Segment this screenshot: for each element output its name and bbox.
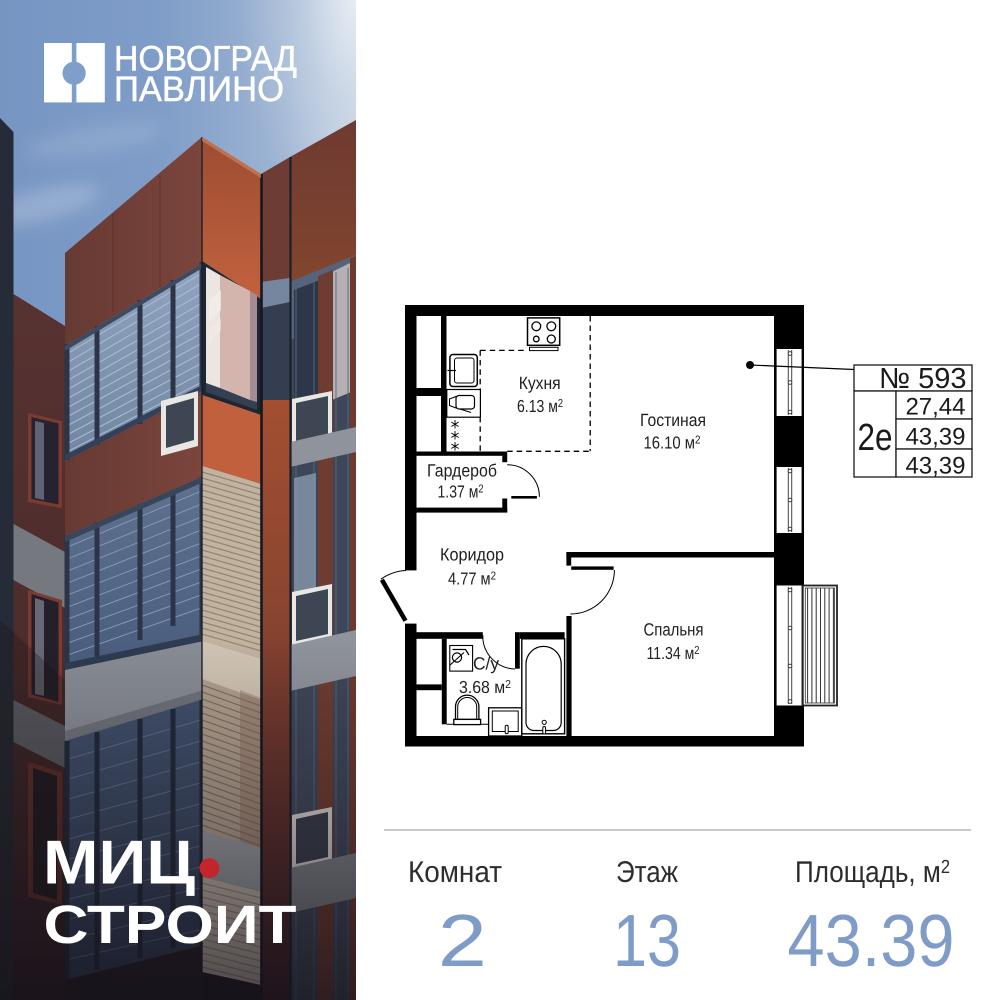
svg-text:Комнат: Комнат — [408, 856, 502, 889]
svg-text:ПАВЛИНО: ПАВЛИНО — [114, 69, 284, 109]
svg-text:43,39: 43,39 — [905, 453, 965, 480]
svg-text:11.34 м2: 11.34 м2 — [647, 643, 700, 663]
svg-text:43,39: 43,39 — [905, 424, 965, 451]
svg-text:Гардероб: Гардероб — [427, 461, 497, 481]
svg-text:16.10 м2: 16.10 м2 — [644, 433, 701, 453]
svg-text:Спальня: Спальня — [644, 620, 704, 640]
svg-text:27,44: 27,44 — [905, 394, 965, 421]
svg-text:МИЦ: МИЦ — [43, 829, 195, 898]
svg-text:43.39: 43.39 — [788, 899, 955, 982]
svg-text:13: 13 — [613, 899, 681, 982]
svg-text:С/у: С/у — [473, 654, 499, 674]
svg-text:№ 593: № 593 — [879, 363, 967, 395]
svg-text:3.68 м2: 3.68 м2 — [459, 677, 511, 697]
svg-text:1.37 м2: 1.37 м2 — [438, 482, 484, 502]
svg-text:4.77 м2: 4.77 м2 — [448, 569, 496, 589]
svg-text:Этаж: Этаж — [616, 856, 678, 889]
svg-text:Гостиная: Гостиная — [640, 410, 706, 430]
svg-text:2е: 2е — [858, 417, 893, 459]
svg-text:6.13 м2: 6.13 м2 — [517, 396, 563, 416]
svg-text:СТРОИТ: СТРОИТ — [44, 895, 297, 955]
svg-text:Коридор: Коридор — [440, 545, 504, 565]
svg-text:Кухня: Кухня — [519, 373, 561, 393]
svg-text:2: 2 — [438, 899, 487, 982]
svg-text:Площадь, м2: Площадь, м2 — [795, 856, 950, 889]
